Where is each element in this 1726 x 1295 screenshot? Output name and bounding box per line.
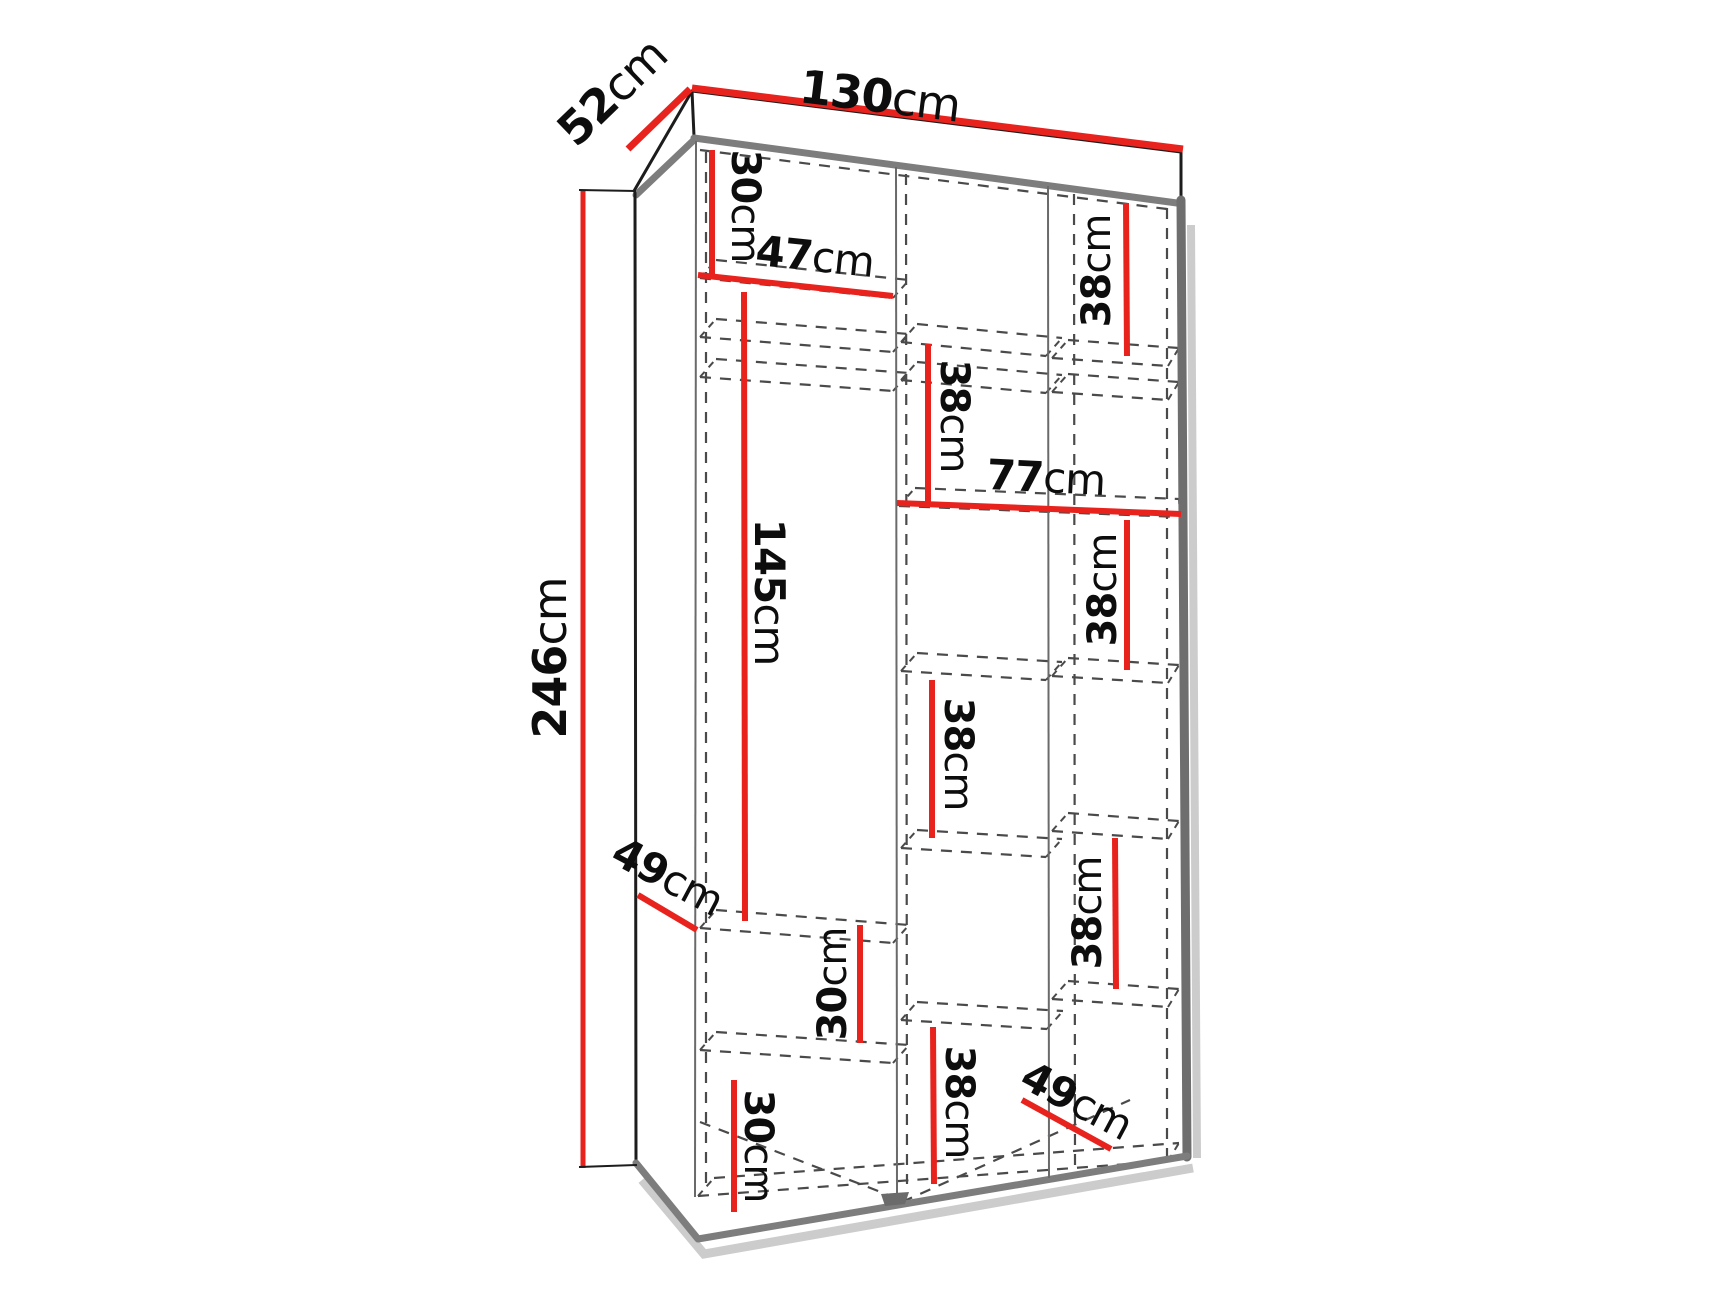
shelf-hidden-line (1168, 989, 1179, 1007)
dim-label-right-upper-38: 38cm (1080, 534, 1126, 647)
shelf-hidden-line (1068, 658, 1179, 665)
dim-label-shelf-77: 77cm (986, 449, 1107, 504)
shelf-hidden-line (1068, 981, 1179, 989)
dim-label-hanging-145: 145cm (746, 519, 795, 666)
floor-diagonal-left-hidden (700, 1122, 891, 1196)
back-top-edge-hidden (700, 150, 1167, 209)
dimension-line-right-lower-38 (1115, 838, 1116, 989)
dim-label-top-right-38: 38cm (1074, 215, 1120, 328)
left-panel-top-edge (634, 91, 692, 191)
shadow-bottom (642, 1168, 1193, 1254)
shelf-hidden-line (700, 377, 893, 391)
shelf-hidden-line (917, 324, 1062, 338)
dimension-line-bottom-mid-38 (933, 1027, 934, 1184)
divider1-front-edge (896, 167, 897, 1194)
dim-label-shelf-47: 47cm (754, 225, 877, 286)
dim-label-depth-right-49: 49cm (1013, 1051, 1141, 1150)
shelf-hidden-line (917, 1002, 1063, 1011)
shelf-hidden-line (1052, 831, 1168, 839)
shelf-hidden-line (1052, 999, 1168, 1007)
right-outer-edge (1181, 200, 1187, 1157)
shelf-hidden-line (700, 319, 716, 337)
shelf-hidden-line (700, 928, 893, 943)
divider2-back-hidden (1074, 194, 1075, 1166)
shelf-hidden-line (901, 342, 1046, 356)
shelf-hidden-line (901, 848, 1046, 857)
shelf-hidden-line (1168, 821, 1179, 839)
divider1-back-hidden (906, 174, 907, 1184)
shelf-hidden-line (700, 337, 893, 352)
dim-label-bottom-left-30: 30cm (735, 1090, 781, 1203)
shelf-hidden-line (1068, 340, 1179, 348)
dim-label-mid-middle-38: 38cm (935, 698, 981, 811)
shelf-hidden-line (917, 653, 1062, 662)
diagram-canvas: 52cm 130cm 246cm 30cm 47cm 38cm 38cm 77c… (0, 0, 1726, 1295)
dim-label-width-130: 130cm (797, 59, 964, 132)
dim-label-depth-52: 52cm (546, 27, 677, 156)
shelf-hidden-line (901, 1002, 917, 1020)
dim-label-height-246: 246cm (523, 577, 577, 738)
left-panel-slant-edge (636, 139, 695, 195)
extension-tick-bottom (579, 1165, 637, 1167)
shelf-hidden-line (1068, 813, 1179, 821)
shelf-hidden-line (901, 653, 917, 671)
shelf-hidden-line (901, 362, 917, 380)
shelf-hidden-line (901, 671, 1046, 680)
shelf-hidden-line (917, 830, 1062, 839)
extension-tick-top (579, 190, 636, 191)
shelf-hidden-line (1068, 374, 1179, 382)
shelf-hidden-line (1168, 665, 1179, 683)
shelf-hidden-line (1052, 676, 1168, 683)
left-outer-edge (635, 193, 636, 1164)
shelf-hidden-line (1052, 392, 1168, 400)
dimension-line-top-right-38 (1126, 203, 1127, 356)
wardrobe-dimension-diagram: 52cm 130cm 246cm 30cm 47cm 38cm 38cm 77c… (0, 0, 1726, 1295)
shelf-hidden-line (1052, 358, 1168, 366)
dim-label-right-lower-38: 38cm (1065, 857, 1111, 970)
divider2-front-edge (1048, 186, 1049, 1178)
shelf-hidden-line (1052, 340, 1068, 358)
shelf-hidden-line (901, 830, 917, 848)
door-gap-notch (881, 1192, 909, 1206)
shelf-hidden-line (901, 1020, 1047, 1029)
shelf-hidden-line (1052, 981, 1068, 999)
dim-label-bottom-mid-38: 38cm (936, 1046, 982, 1159)
dimension-line-hanging-145 (744, 292, 745, 921)
dim-label-mid-upper-38: 38cm (931, 360, 977, 473)
shelf-hidden-line (700, 1050, 893, 1063)
top-panel-left-edge (692, 91, 694, 136)
shelf-hidden-line (1168, 348, 1179, 366)
shelf-hidden-line (1052, 658, 1068, 676)
shelf-hidden-line (700, 1032, 716, 1050)
shadow-right (1191, 225, 1197, 1158)
shelf-hidden-line (1168, 382, 1179, 400)
dim-label-left-lower-30: 30cm (810, 928, 856, 1041)
shelf-hidden-line (700, 359, 716, 377)
left-inner-edge (695, 141, 696, 1197)
shelf-hidden-line (1052, 813, 1068, 831)
